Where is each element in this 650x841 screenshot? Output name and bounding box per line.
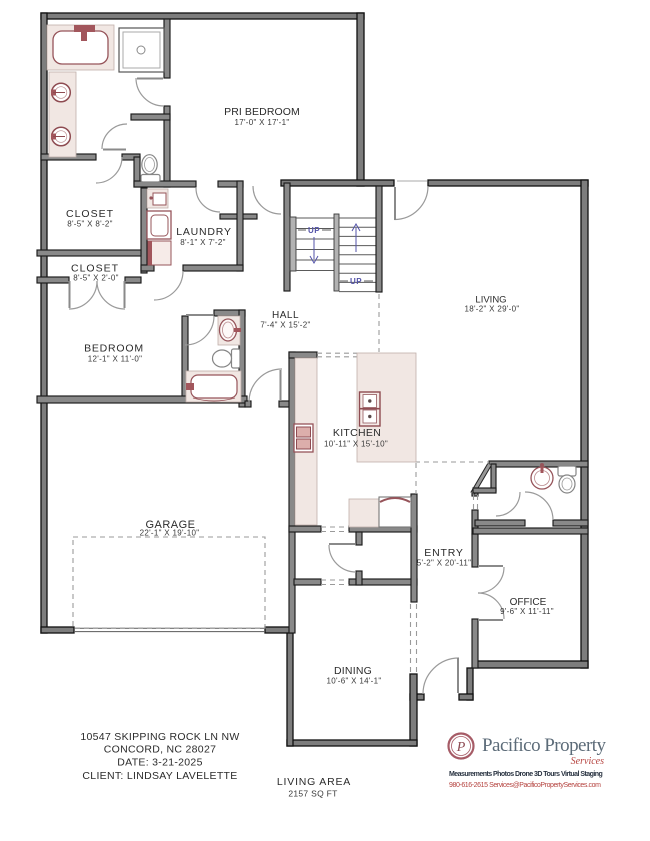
svg-text:8'-5" X 8'-2": 8'-5" X 8'-2" [67, 220, 113, 229]
svg-text:Pacifico Property: Pacifico Property [482, 735, 607, 756]
svg-text:5'-2" X 20'-11": 5'-2" X 20'-11" [417, 559, 471, 568]
svg-text:LAUNDRY: LAUNDRY [176, 226, 232, 238]
svg-text:KITCHEN: KITCHEN [333, 427, 381, 439]
svg-text:DINING: DINING [334, 665, 372, 677]
svg-text:7'-4" X 15'-2": 7'-4" X 15'-2" [260, 321, 310, 330]
svg-text:UP: UP [308, 226, 320, 235]
svg-text:CLIENT: LINDSAY LAVELETTE: CLIENT: LINDSAY LAVELETTE [82, 770, 237, 782]
svg-text:17'-0" X 17'-1": 17'-0" X 17'-1" [234, 118, 289, 127]
svg-text:18'-2" X 29'-0": 18'-2" X 29'-0" [464, 305, 519, 314]
svg-text:CONCORD, NC 28027: CONCORD, NC 28027 [104, 744, 216, 756]
svg-text:DATE: 3-21-2025: DATE: 3-21-2025 [117, 757, 202, 769]
svg-text:HALL: HALL [272, 310, 299, 321]
svg-text:9'-6" X 11'-11": 9'-6" X 11'-11" [500, 607, 554, 616]
svg-text:CLOSET: CLOSET [66, 208, 114, 220]
svg-text:LIVING AREA: LIVING AREA [277, 776, 351, 788]
svg-text:P: P [456, 740, 466, 755]
svg-text:Measurements Photos Drone 3D T: Measurements Photos Drone 3D Tours Virtu… [449, 771, 603, 778]
svg-text:980-616-2615 Services@Pacifico: 980-616-2615 Services@PacificoPropertySe… [449, 782, 601, 789]
svg-text:10'-6" X 14'-1": 10'-6" X 14'-1" [326, 677, 381, 686]
svg-text:PRI BEDROOM: PRI BEDROOM [224, 106, 300, 118]
svg-text:10'-11" X 15'-10": 10'-11" X 15'-10" [324, 440, 388, 449]
svg-text:22'-1" X 19'-10": 22'-1" X 19'-10" [140, 529, 200, 538]
svg-text:12'-1" X 11'-0": 12'-1" X 11'-0" [88, 355, 142, 364]
svg-text:Services: Services [571, 756, 604, 767]
svg-text:ENTRY: ENTRY [424, 547, 463, 559]
svg-text:8'-1" X 7'-2": 8'-1" X 7'-2" [180, 238, 226, 247]
svg-text:10547 SKIPPING ROCK LN NW: 10547 SKIPPING ROCK LN NW [80, 731, 239, 743]
svg-text:8'-5" X 2'-0": 8'-5" X 2'-0" [73, 274, 119, 283]
svg-text:BEDROOM: BEDROOM [84, 343, 144, 355]
svg-text:2157 SQ FT: 2157 SQ FT [288, 789, 337, 799]
svg-text:UP: UP [350, 277, 362, 286]
